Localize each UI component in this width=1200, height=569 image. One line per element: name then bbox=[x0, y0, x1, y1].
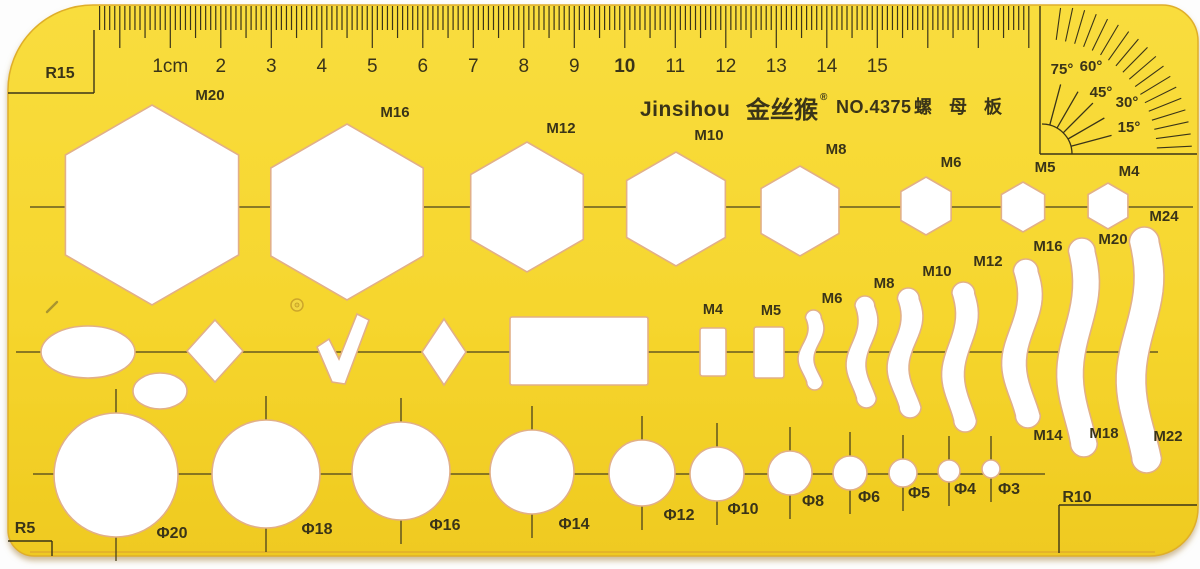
protractor-label: 75° bbox=[1051, 61, 1074, 78]
circle-label-Φ12: Φ12 bbox=[664, 507, 695, 524]
brand-model-number: NO.4375 bbox=[836, 97, 912, 117]
brand-product-name-cn: 螺 母 板 bbox=[914, 96, 1008, 117]
ruler-number: 7 bbox=[468, 56, 479, 77]
rect-slot-label-M4: M4 bbox=[703, 302, 723, 318]
ruler-number: 4 bbox=[317, 56, 328, 77]
circle-cutout-Φ10 bbox=[690, 447, 744, 501]
circle-cutout-Φ5 bbox=[889, 459, 917, 487]
brand-registered-mark: ® bbox=[820, 92, 828, 103]
ruler-number: 12 bbox=[715, 56, 736, 77]
mold-hole-center bbox=[295, 303, 299, 307]
circle-cutout-Φ12 bbox=[609, 440, 675, 506]
ruler-number: 11 bbox=[665, 56, 685, 77]
ruler-number: 13 bbox=[766, 56, 787, 77]
hexagon-label-M6: M6 bbox=[941, 154, 962, 171]
hexagon-label-M16: M16 bbox=[380, 104, 409, 121]
circle-label-Φ10: Φ10 bbox=[728, 501, 759, 518]
hexagon-label-M12: M12 bbox=[546, 120, 575, 137]
protractor-label: 60° bbox=[1080, 58, 1103, 75]
small-ellipse-cutout bbox=[133, 373, 187, 409]
circle-label-Φ18: Φ18 bbox=[302, 521, 333, 538]
ruler-number: 6 bbox=[418, 56, 429, 77]
protractor-label: 45° bbox=[1090, 84, 1113, 101]
circle-cutout-Φ20 bbox=[54, 413, 178, 537]
ruler-number: 1cm bbox=[152, 56, 188, 77]
ruler-number: 14 bbox=[816, 56, 838, 77]
circle-label-Φ14: Φ14 bbox=[559, 516, 590, 533]
ruler-number: 8 bbox=[519, 56, 530, 77]
circle-label-Φ8: Φ8 bbox=[802, 493, 824, 510]
circle-cutout-Φ8 bbox=[768, 451, 812, 495]
ruler-number: 10 bbox=[614, 56, 635, 77]
circle-cutout-Φ16 bbox=[352, 422, 450, 520]
ruler-number: 3 bbox=[266, 56, 277, 77]
curve-slot-label-M10: M10 bbox=[922, 263, 951, 280]
circle-label-Φ5: Φ5 bbox=[908, 485, 930, 502]
curve-slot-label-M6: M6 bbox=[822, 290, 843, 307]
curve-slot-label-M14: M14 bbox=[1033, 427, 1063, 444]
circle-cutout-Φ14 bbox=[490, 430, 574, 514]
protractor-label: 30° bbox=[1116, 94, 1139, 111]
hexagon-label-M5: M5 bbox=[1035, 159, 1056, 176]
protractor-label: 15° bbox=[1118, 119, 1141, 136]
r15-label: R15 bbox=[45, 65, 74, 82]
brand-logo-cn: 金丝猴 bbox=[745, 96, 819, 124]
curve-slot-label-M12: M12 bbox=[973, 253, 1002, 270]
circle-label-Φ16: Φ16 bbox=[430, 517, 461, 534]
curve-slot-label-M16: M16 bbox=[1033, 238, 1062, 255]
curve-slot-label-M18: M18 bbox=[1089, 425, 1118, 442]
large-ellipse-cutout bbox=[41, 326, 135, 378]
rect-slot-label-M5: M5 bbox=[761, 303, 781, 319]
curve-slot-label-M8: M8 bbox=[874, 275, 895, 292]
brand-name-latin: Jinsihou bbox=[640, 98, 730, 121]
ruler-number: 15 bbox=[867, 56, 888, 77]
rect-slot-cutout-M5 bbox=[754, 327, 784, 378]
circle-label-Φ6: Φ6 bbox=[858, 489, 880, 506]
circle-cutout-Φ6 bbox=[833, 456, 867, 490]
rect-slot-cutout-M4 bbox=[700, 328, 726, 376]
hexagon-label-M10: M10 bbox=[694, 127, 723, 144]
curve-slot-label-M20: M20 bbox=[1098, 231, 1127, 248]
template-photo: 1cm23456789101112131415R15R5R1075°60°45°… bbox=[0, 0, 1200, 569]
r10-label: R10 bbox=[1062, 489, 1091, 506]
circle-cutout-Φ3 bbox=[982, 460, 1000, 478]
circle-label-Φ3: Φ3 bbox=[998, 481, 1020, 498]
curve-slot-label-M24: M24 bbox=[1149, 208, 1179, 225]
rectangle-cutout bbox=[510, 317, 648, 385]
circle-cutout-Φ18 bbox=[212, 420, 320, 528]
r5-label: R5 bbox=[15, 520, 36, 537]
circle-cutout-Φ4 bbox=[938, 460, 960, 482]
circle-label-Φ4: Φ4 bbox=[954, 481, 976, 498]
circle-label-Φ20: Φ20 bbox=[157, 525, 188, 542]
ruler-number: 5 bbox=[367, 56, 378, 77]
hexagon-label-M20: M20 bbox=[195, 87, 224, 104]
nut-template-svg: 1cm23456789101112131415R15R5R1075°60°45°… bbox=[0, 0, 1200, 569]
ruler-number: 2 bbox=[216, 56, 227, 77]
hexagon-label-M4: M4 bbox=[1119, 163, 1140, 180]
ruler-number: 9 bbox=[569, 56, 580, 77]
curve-slot-label-M22: M22 bbox=[1153, 428, 1182, 445]
hexagon-label-M8: M8 bbox=[826, 141, 847, 158]
